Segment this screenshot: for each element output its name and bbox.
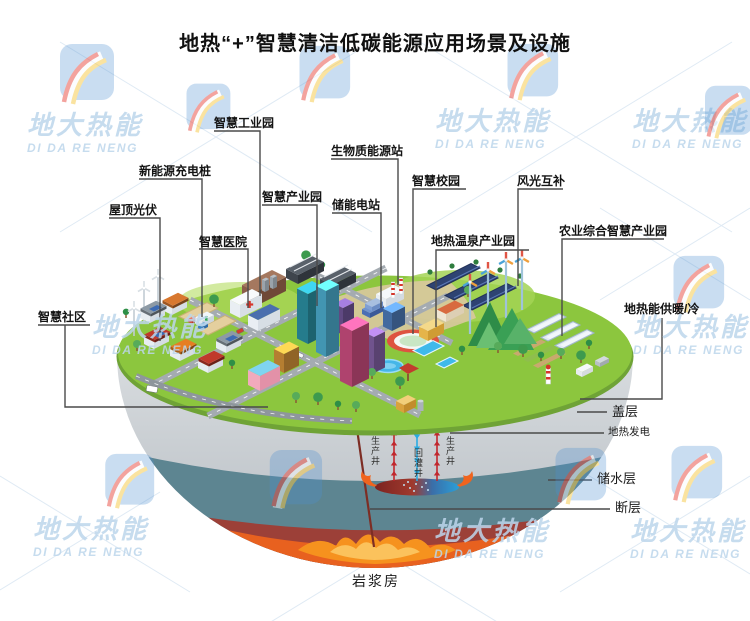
infographic-stage: 地大热能DI DA RE NENG 地大热能DI DA RE NENG 地大热能… bbox=[0, 0, 750, 621]
fractured-reservoir bbox=[375, 479, 459, 496]
earth-cross-section-illustration bbox=[0, 0, 750, 621]
